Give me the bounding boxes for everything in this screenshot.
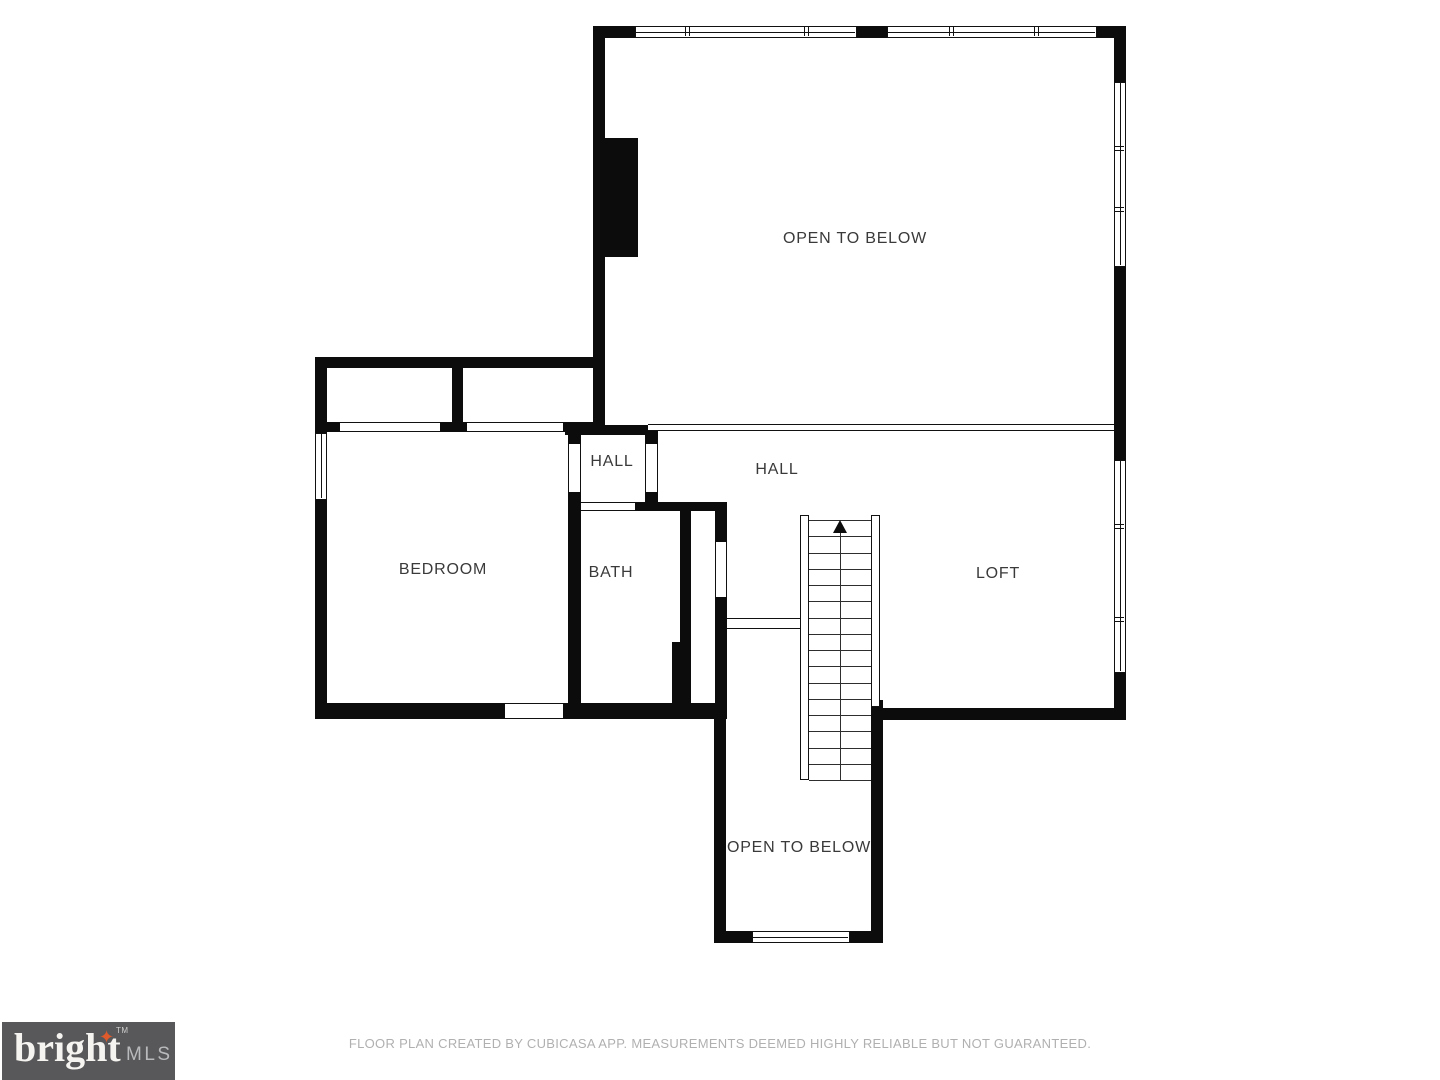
wall-segment <box>715 597 727 719</box>
wall-segment <box>315 357 605 368</box>
window-pane-line <box>1034 27 1035 36</box>
door-opening <box>340 422 440 432</box>
door-opening <box>505 703 563 719</box>
room-label-open-to-below-bottom: OPEN TO BELOW <box>727 839 871 857</box>
wall-segment <box>680 502 691 642</box>
window-pane-line <box>1038 27 1039 36</box>
window-pane-line <box>804 27 805 36</box>
window <box>635 26 857 38</box>
wall-segment <box>714 703 726 943</box>
wall-segment <box>568 435 581 444</box>
window-pane-line <box>1115 617 1124 618</box>
wall-segment <box>871 708 1126 720</box>
window-pane-line <box>949 27 950 36</box>
room-label-hall-small: HALL <box>590 453 633 471</box>
window-pane-line <box>1115 524 1124 525</box>
chimney-block <box>602 138 638 257</box>
window-pane-line <box>689 27 690 36</box>
logo-suffix-text: MLS <box>126 1044 173 1066</box>
window-pane-line <box>636 32 855 33</box>
window-pane-line <box>1115 528 1124 529</box>
window-pane-line <box>753 937 848 938</box>
window <box>887 26 1097 38</box>
room-label-bath: BATH <box>589 564 634 582</box>
window-pane-line <box>1115 621 1124 622</box>
window-pane-line <box>1120 83 1121 265</box>
window <box>752 931 850 943</box>
window-pane-line <box>1115 211 1124 212</box>
wall-segment <box>715 502 727 542</box>
room-label-hall-main: HALL <box>755 461 798 479</box>
room-label-loft: LOFT <box>976 565 1020 583</box>
wall-segment <box>568 492 581 719</box>
window-pane-line <box>1115 150 1124 151</box>
door-opening <box>715 542 727 597</box>
railing <box>727 618 802 629</box>
wall-segment <box>672 642 691 707</box>
wall-segment <box>857 26 887 38</box>
room-label-bedroom: BEDROOM <box>399 561 487 579</box>
stair-center-line <box>840 530 841 780</box>
wall-segment <box>315 357 327 719</box>
window <box>1114 460 1126 673</box>
wall-segment <box>440 422 467 432</box>
window-pane-line <box>685 27 686 36</box>
door-opening <box>467 422 563 432</box>
door-opening <box>581 502 635 511</box>
brightmls-logo: bright ✦ TM MLS <box>2 1022 175 1080</box>
wall-segment <box>565 425 648 435</box>
logo-trademark-text: TM <box>116 1026 129 1035</box>
window-pane-line <box>1120 461 1121 671</box>
window <box>1114 82 1126 267</box>
disclaimer-text: FLOOR PLAN CREATED BY CUBICASA APP. MEAS… <box>0 1036 1440 1051</box>
room-label-open-to-below-top: OPEN TO BELOW <box>783 230 927 248</box>
stair-stringer <box>800 515 809 780</box>
wall-segment <box>315 422 340 432</box>
wall-segment <box>635 502 682 511</box>
door-opening <box>568 444 581 492</box>
window <box>315 433 327 500</box>
window-pane-line <box>321 434 322 498</box>
logo-star-icon: ✦ <box>99 1027 114 1048</box>
railing <box>648 424 1114 431</box>
window-pane-line <box>808 27 809 36</box>
stair-tread <box>809 780 871 781</box>
stair-stringer <box>871 515 880 707</box>
window-pane-line <box>1115 146 1124 147</box>
wall-segment <box>563 703 727 719</box>
floor-plan-page: OPEN TO BELOW HALL HALL BEDROOM BATH LOF… <box>0 0 1440 1080</box>
door-opening <box>645 444 658 492</box>
window-pane-line <box>953 27 954 36</box>
wall-segment <box>871 700 883 943</box>
window-pane-line <box>1115 207 1124 208</box>
stair-up-arrow-icon <box>833 520 847 533</box>
wall-segment <box>315 703 505 719</box>
window-pane-line <box>888 32 1095 33</box>
